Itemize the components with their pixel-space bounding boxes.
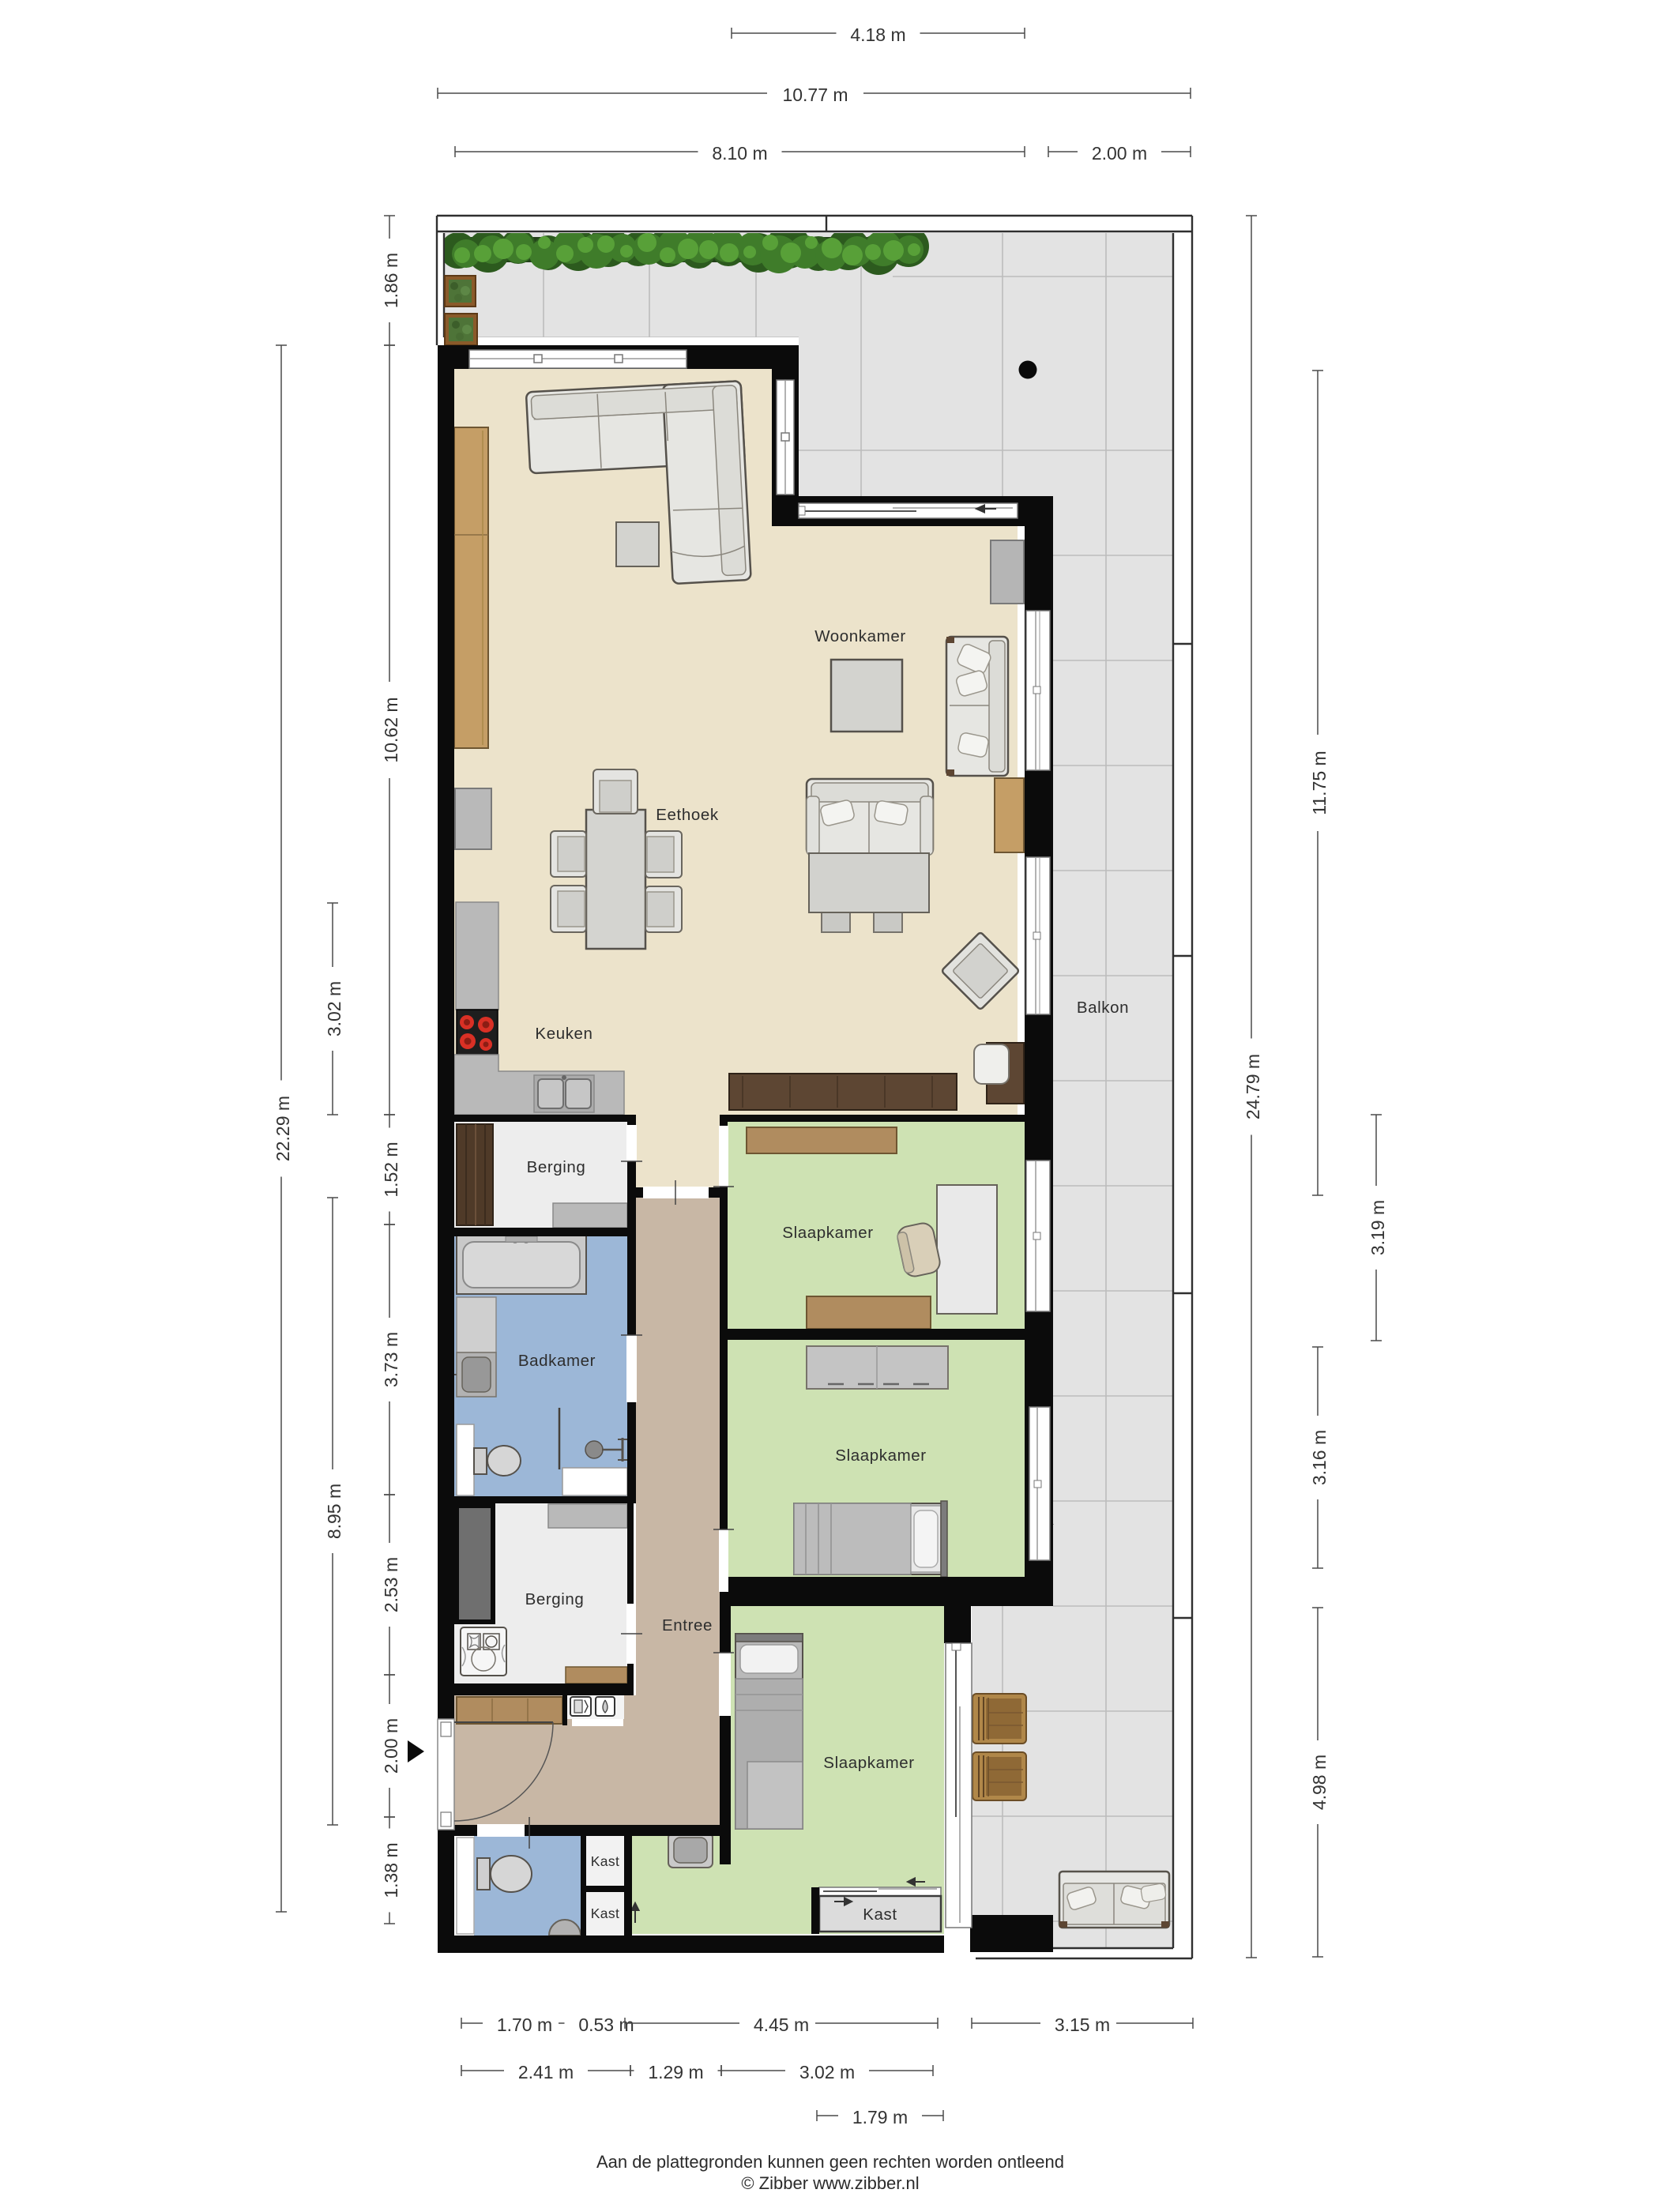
- svg-text:11.75 m: 11.75 m: [1309, 750, 1330, 814]
- svg-text:3.19 m: 3.19 m: [1367, 1200, 1388, 1255]
- svg-text:3.16 m: 3.16 m: [1309, 1430, 1330, 1485]
- svg-text:Slaapkamer: Slaapkamer: [823, 1754, 914, 1772]
- svg-text:8.95 m: 8.95 m: [324, 1484, 344, 1539]
- svg-text:Eethoek: Eethoek: [656, 806, 719, 824]
- svg-text:Kast: Kast: [591, 1853, 620, 1869]
- svg-text:2.41 m: 2.41 m: [518, 2062, 574, 2082]
- svg-text:2.00 m: 2.00 m: [381, 1718, 401, 1774]
- svg-text:1.52 m: 1.52 m: [381, 1142, 401, 1197]
- svg-text:Entree: Entree: [662, 1616, 713, 1635]
- svg-text:24.79 m: 24.79 m: [1243, 1054, 1263, 1119]
- svg-text:Woonkamer: Woonkamer: [814, 627, 906, 645]
- svg-text:1.29 m: 1.29 m: [648, 2062, 703, 2082]
- svg-text:© Zibber www.zibber.nl: © Zibber www.zibber.nl: [741, 2173, 919, 2193]
- svg-text:1.70 m: 1.70 m: [497, 2014, 552, 2035]
- svg-text:Berging: Berging: [525, 1590, 585, 1608]
- svg-text:8.10 m: 8.10 m: [712, 143, 767, 164]
- svg-text:Berging: Berging: [527, 1158, 586, 1176]
- svg-text:10.62 m: 10.62 m: [381, 697, 401, 762]
- svg-text:1.79 m: 1.79 m: [852, 2107, 908, 2127]
- svg-text:3.73 m: 3.73 m: [381, 1332, 401, 1387]
- svg-text:3.02 m: 3.02 m: [324, 981, 344, 1036]
- svg-text:2.00 m: 2.00 m: [1092, 143, 1147, 164]
- svg-text:0.53 m: 0.53 m: [578, 2014, 634, 2035]
- svg-text:Badkamer: Badkamer: [518, 1352, 596, 1370]
- svg-text:4.98 m: 4.98 m: [1309, 1755, 1330, 1810]
- svg-text:2.53 m: 2.53 m: [381, 1557, 401, 1612]
- svg-text:Slaapkamer: Slaapkamer: [835, 1446, 926, 1465]
- svg-text:Keuken: Keuken: [535, 1025, 592, 1043]
- svg-text:22.29 m: 22.29 m: [273, 1096, 293, 1161]
- svg-text:3.15 m: 3.15 m: [1055, 2014, 1110, 2035]
- svg-text:Aan de plattegronden kunnen ge: Aan de plattegronden kunnen geen rechten…: [596, 2152, 1064, 2172]
- svg-text:4.18 m: 4.18 m: [850, 24, 905, 45]
- svg-text:Slaapkamer: Slaapkamer: [782, 1224, 873, 1242]
- svg-text:Kast: Kast: [591, 1905, 620, 1921]
- svg-text:Kast: Kast: [863, 1905, 897, 1924]
- svg-text:1.38 m: 1.38 m: [381, 1842, 401, 1898]
- svg-text:1.86 m: 1.86 m: [381, 253, 401, 308]
- svg-text:4.45 m: 4.45 m: [754, 2014, 809, 2035]
- svg-text:Balkon: Balkon: [1077, 999, 1129, 1017]
- svg-text:10.77 m: 10.77 m: [782, 85, 848, 105]
- svg-text:3.02 m: 3.02 m: [799, 2062, 855, 2082]
